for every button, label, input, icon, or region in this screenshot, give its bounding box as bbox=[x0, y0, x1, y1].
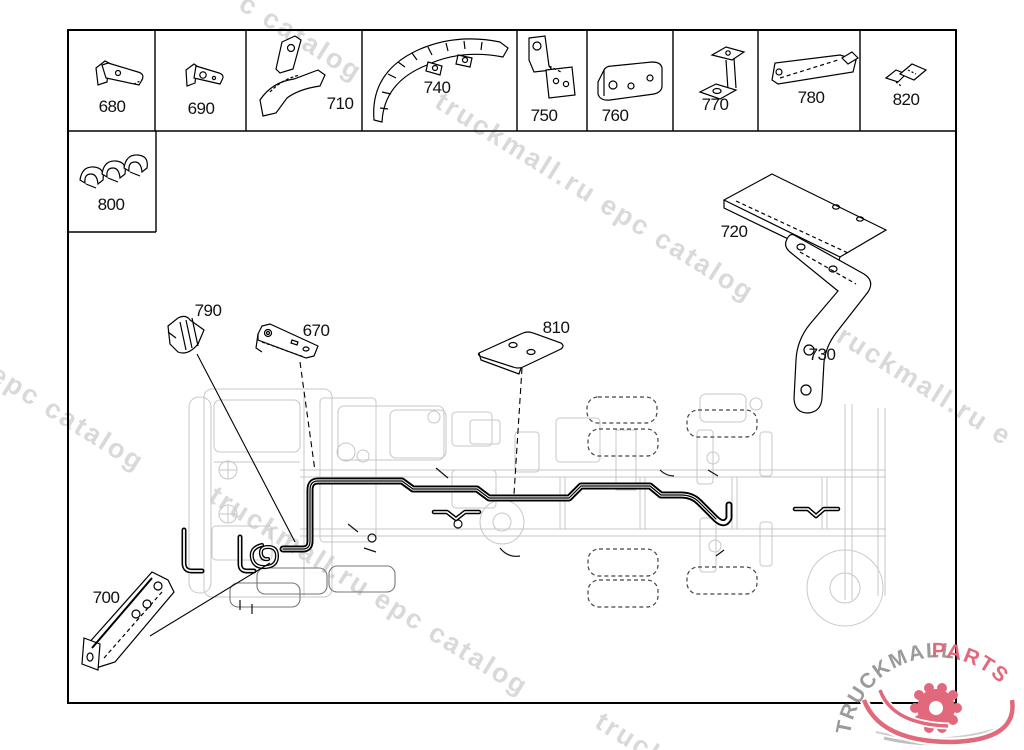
part-cell-780[interactable] bbox=[758, 30, 860, 131]
parts-catalog-page: c catalog truckmall.ru epc catalog truck… bbox=[0, 0, 1024, 750]
part-cell-800[interactable] bbox=[68, 131, 156, 232]
grid-hotspots bbox=[0, 0, 1024, 750]
part-cell-680[interactable] bbox=[68, 30, 155, 131]
part-cell-770[interactable] bbox=[673, 30, 758, 131]
part-cell-750[interactable] bbox=[517, 30, 587, 131]
part-cell-760[interactable] bbox=[587, 30, 673, 131]
part-cell-710[interactable] bbox=[246, 30, 362, 131]
part-cell-740[interactable] bbox=[362, 30, 517, 131]
part-cell-820[interactable] bbox=[860, 30, 956, 131]
part-cell-690[interactable] bbox=[155, 30, 246, 131]
